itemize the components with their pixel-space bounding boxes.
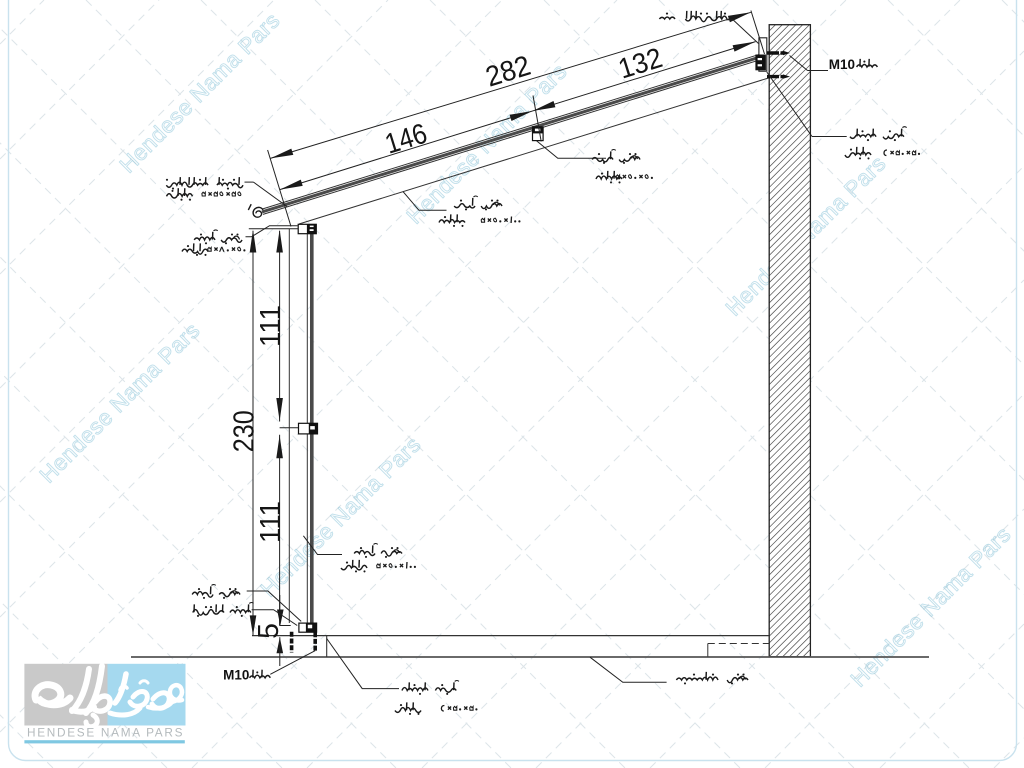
svg-text:111: 111	[255, 305, 287, 347]
svg-text:230: 230	[228, 410, 260, 452]
svg-text:HENDESE NAMA PARS: HENDESE NAMA PARS	[27, 726, 184, 740]
svg-text:M10: M10	[829, 57, 855, 72]
svg-text:M10: M10	[223, 668, 249, 683]
svg-text:111: 111	[255, 501, 287, 543]
svg-text:5: 5	[253, 623, 285, 639]
